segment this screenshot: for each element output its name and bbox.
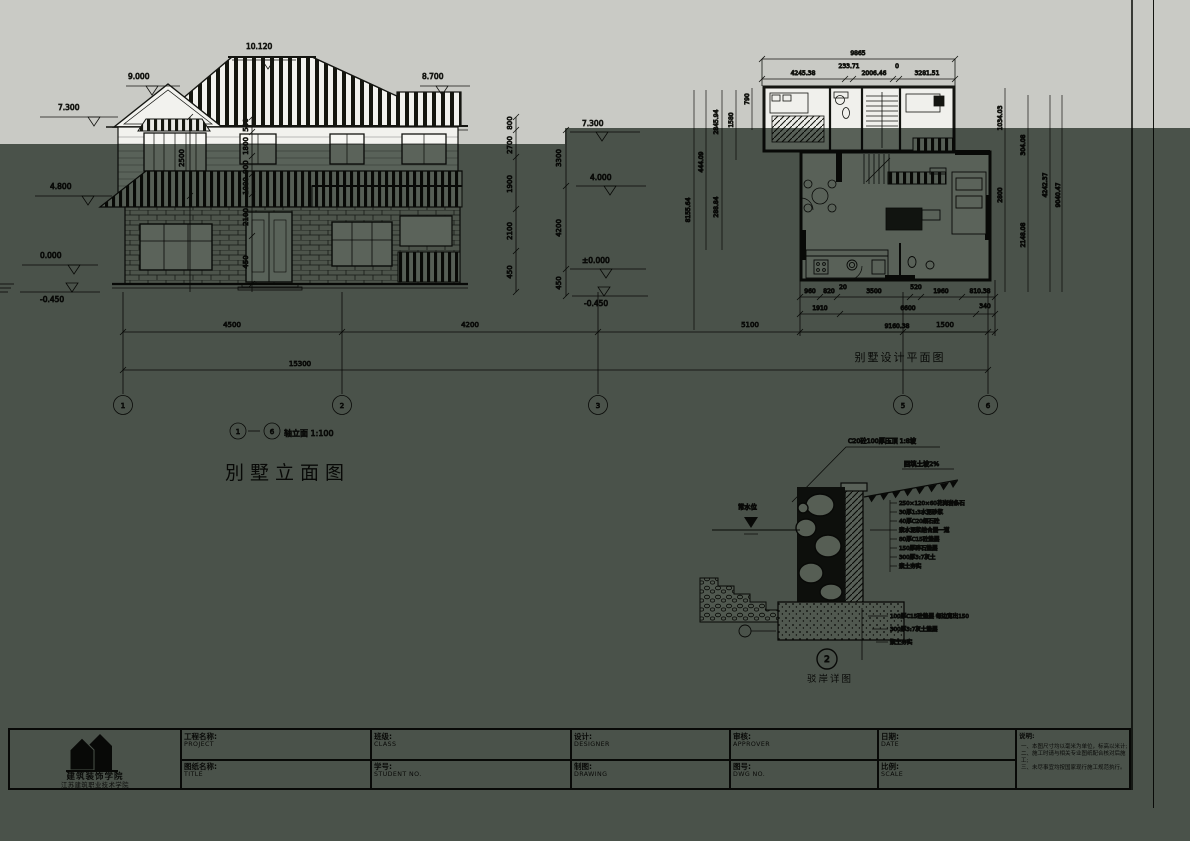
level-label: 0.000 bbox=[40, 251, 62, 260]
dim-label: 9865 bbox=[850, 50, 865, 57]
footing bbox=[778, 602, 904, 640]
layer-label: 300厚3:7灰土 bbox=[899, 553, 936, 561]
layer-label: 素土夯实 bbox=[899, 562, 922, 570]
level-label: 8.700 bbox=[422, 72, 444, 81]
field-dwg-no: 图号: DWG NO. bbox=[733, 762, 765, 779]
axis-start-label: 1 bbox=[236, 428, 240, 436]
elevation-title: 別墅立面图 bbox=[225, 462, 350, 484]
dim-label: 450 bbox=[555, 276, 563, 289]
dim-label: 810.38 bbox=[970, 288, 991, 295]
dim-label: 2800 bbox=[997, 187, 1004, 202]
field-label-cn: 日期: bbox=[881, 732, 899, 741]
field-label-en: DESIGNER bbox=[574, 741, 610, 749]
stepped-bank bbox=[700, 578, 784, 622]
upper-windows bbox=[240, 134, 446, 164]
grid-bubble-label: 3 bbox=[596, 402, 600, 410]
layer-label: 150厚碎石垫层 bbox=[899, 544, 938, 552]
dim-label: 2700 bbox=[506, 136, 514, 154]
dim-label: 790 bbox=[744, 93, 751, 105]
dim-label: 1800 bbox=[242, 137, 250, 155]
level-label: 9.000 bbox=[128, 72, 150, 81]
field-project: 工程名称: PROJECT bbox=[184, 732, 217, 749]
left-window bbox=[140, 224, 212, 270]
dim-label: 4200 bbox=[461, 321, 479, 329]
school-logo-icon bbox=[10, 730, 180, 772]
revetment-detail-drawing: C20砼100厚压顶 1:8坡 回填土坡2% 常水位 bbox=[700, 436, 969, 669]
dim-label: 3500 bbox=[866, 288, 881, 295]
cad-sheet: 10.120 9.000 8.700 7.300 4.800 0.000 -0.… bbox=[0, 0, 1190, 841]
drawing-canvas: 10.120 9.000 8.700 7.300 4.800 0.000 -0.… bbox=[0, 0, 1190, 841]
dim-label: 6600 bbox=[900, 305, 915, 312]
dormer-roof bbox=[397, 92, 461, 126]
axis-scale-label: 轴立面 1:100 bbox=[284, 428, 334, 438]
dim-label: 2845.94 bbox=[713, 109, 720, 134]
layer-label: 80厚C15砼垫层 bbox=[899, 535, 940, 543]
dim-label: 900 bbox=[242, 160, 250, 173]
elevation-drawing bbox=[100, 57, 468, 290]
dim-label: 1960 bbox=[933, 288, 948, 295]
island-table bbox=[886, 208, 922, 230]
dim-label: 800 bbox=[506, 116, 514, 129]
dim-label: 1580 bbox=[728, 112, 735, 127]
level-label: 7.300 bbox=[582, 119, 604, 128]
dim-label: 1034.03 bbox=[997, 105, 1004, 130]
field-label-en: SCALE bbox=[881, 771, 903, 779]
balcony-railing bbox=[312, 186, 462, 207]
dim-label: 500 bbox=[242, 118, 250, 131]
dim-label: 233.71 bbox=[839, 63, 860, 70]
dim-label: 4500 bbox=[223, 321, 241, 329]
sheet-border bbox=[1132, 0, 1154, 808]
dim-label: 2100 bbox=[506, 222, 514, 240]
dim-label: 3300 bbox=[555, 149, 563, 167]
detail-note-top: C20砼100厚压顶 1:8坡 bbox=[848, 436, 917, 445]
dim-label: 2100 bbox=[242, 208, 250, 226]
level-label: ±0.000 bbox=[582, 256, 610, 265]
layer-label: 素水泥浆结合层一道 bbox=[899, 526, 950, 534]
dim-label: 820 bbox=[823, 288, 835, 295]
dim-label: 2500 bbox=[178, 149, 186, 167]
field-label-cn: 制图: bbox=[574, 762, 607, 771]
level-label: 10.120 bbox=[246, 42, 272, 51]
dim-label: 2006.46 bbox=[862, 70, 887, 77]
detail-note-slope: 回填土坡2% bbox=[904, 459, 939, 468]
field-label-cn: 图号: bbox=[733, 762, 765, 771]
dim-total-label: 9160.38 bbox=[885, 323, 910, 330]
level-label: 4.000 bbox=[590, 173, 612, 182]
dim-label: 20 bbox=[839, 284, 847, 291]
level-label: 7.300 bbox=[58, 103, 80, 112]
field-label-en: STUDENT NO. bbox=[374, 771, 422, 779]
footing-note: 100厚C15砼垫层 每边宽出150 bbox=[890, 612, 969, 620]
dim-label: 340 bbox=[979, 303, 991, 310]
dim-label: 9040.47 bbox=[1055, 182, 1062, 207]
retaining-wall bbox=[845, 490, 863, 608]
grid-extension-lines bbox=[123, 292, 988, 394]
field-designer: 设计: DESIGNER bbox=[574, 732, 610, 749]
divider bbox=[180, 759, 1015, 761]
dim-label: 4245.38 bbox=[791, 70, 816, 77]
field-student-no: 学号: STUDENT NO. bbox=[374, 762, 422, 779]
field-label-cn: 班级: bbox=[374, 732, 396, 741]
bay-awning bbox=[138, 119, 210, 131]
note-line: 二、施工时请与相关专业图纸配合核对后施工; bbox=[1021, 751, 1130, 765]
field-label-cn: 审核: bbox=[733, 732, 770, 741]
level-label: 4.800 bbox=[50, 182, 72, 191]
side-railing bbox=[398, 252, 460, 282]
field-approver: 审核: APPROVER bbox=[733, 732, 770, 749]
soil-hatch bbox=[868, 481, 958, 503]
dim-label: 4200 bbox=[555, 219, 563, 237]
field-title: 图纸名称: TITLE bbox=[184, 762, 217, 779]
dim-label: 1910 bbox=[812, 305, 827, 312]
dim-label: 8155.64 bbox=[685, 197, 692, 222]
grid-bubbles bbox=[114, 396, 998, 415]
plan-right-dims bbox=[1005, 88, 1062, 292]
dim-label: 288.84 bbox=[713, 196, 720, 217]
field-label-cn: 设计: bbox=[574, 732, 610, 741]
dim-label: 1000 bbox=[242, 177, 250, 195]
level-label: -0.450 bbox=[584, 299, 608, 308]
dim-label: 4242.37 bbox=[1042, 172, 1049, 197]
field-label-cn: 比例: bbox=[881, 762, 903, 771]
dim-label: 520 bbox=[910, 284, 922, 291]
grid-bubble-label: 1 bbox=[121, 402, 125, 410]
grid-bubble-label: 2 bbox=[340, 402, 344, 410]
field-label-en: DRAWING bbox=[574, 771, 607, 779]
dim-label: 5100 bbox=[741, 321, 759, 329]
layer-label: 250×120×60花岗岩条石 bbox=[899, 499, 965, 507]
dim-label: 2148.08 bbox=[1020, 222, 1027, 247]
detail-caption: 驳岸详图 bbox=[807, 673, 853, 685]
dim-label: 450 bbox=[242, 255, 250, 268]
title-block: 建筑装饰学院 江苏建筑职业技术学院 工程名称: PROJECT 图纸名称: TI… bbox=[8, 728, 1131, 790]
dim-label: 304.08 bbox=[1020, 134, 1027, 155]
side-window bbox=[400, 216, 452, 246]
logo-text-secondary: 江苏建筑职业技术学院 bbox=[10, 782, 180, 790]
note-line: 三、未尽事宜均按国家现行施工规范执行。 bbox=[1021, 765, 1130, 772]
field-label-en: DWG NO. bbox=[733, 771, 765, 779]
dim-label: 0 bbox=[895, 63, 899, 70]
field-label-cn: 工程名称: bbox=[184, 732, 217, 741]
field-label-en: APPROVER bbox=[733, 741, 770, 749]
layer-leaders bbox=[870, 500, 897, 572]
field-label-en: CLASS bbox=[374, 741, 396, 749]
dim-label: 444.09 bbox=[698, 151, 705, 172]
notes-title: 说明: bbox=[1019, 732, 1035, 740]
dim-label: 1900 bbox=[506, 175, 514, 193]
dim-total-label: 15300 bbox=[289, 360, 311, 368]
axis-end-label: 6 bbox=[270, 428, 275, 436]
detail-bubble-number: 2 bbox=[824, 655, 830, 665]
logo-cell: 建筑装饰学院 江苏建筑职业技术学院 bbox=[10, 730, 180, 788]
note-line: 一、本图尺寸均以毫米为单位，标高以米计; bbox=[1021, 744, 1130, 751]
dim-label: 1500 bbox=[936, 321, 954, 329]
field-label-cn: 图纸名称: bbox=[184, 762, 217, 771]
footing-note: 素土夯实 bbox=[890, 638, 913, 646]
field-label-en: TITLE bbox=[184, 771, 217, 779]
layer-label: 30厚1:3水泥砂浆 bbox=[899, 508, 943, 516]
field-drawing: 制图: DRAWING bbox=[574, 762, 607, 779]
water-level-label: 常水位 bbox=[738, 502, 758, 511]
grid-bubble-label: 5 bbox=[901, 402, 905, 410]
level-label: -0.450 bbox=[40, 295, 64, 304]
upper-balcony-railing bbox=[913, 138, 954, 151]
field-label-en: PROJECT bbox=[184, 741, 217, 749]
notes-cell: 说明: 一、本图尺寸均以毫米为单位，标高以米计; 二、施工时请与相关专业图纸配合… bbox=[1015, 730, 1133, 788]
floor-plan-drawing: 9865 4245.38 233.71 2006.46 0 3281.51 bbox=[685, 50, 1062, 336]
field-label-en: DATE bbox=[881, 741, 899, 749]
field-label-cn: 学号: bbox=[374, 762, 422, 771]
dim-label: 3281.51 bbox=[915, 70, 940, 77]
plan-left-dims bbox=[694, 88, 752, 330]
grid-bubble-label: 6 bbox=[986, 402, 991, 410]
field-date: 日期: DATE bbox=[881, 732, 899, 749]
dim-label: 450 bbox=[506, 265, 514, 278]
field-scale: 比例: SCALE bbox=[881, 762, 903, 779]
field-class: 班级: CLASS bbox=[374, 732, 396, 749]
plan-caption: 别墅设计平面图 bbox=[855, 351, 946, 364]
dim-label: 960 bbox=[804, 288, 816, 295]
right-window bbox=[332, 222, 392, 266]
layer-label: 40厚C20细石砼 bbox=[899, 517, 940, 525]
footing-note: 300厚3:7灰土垫层 bbox=[890, 625, 938, 633]
notes-body: 一、本图尺寸均以毫米为单位，标高以米计; 二、施工时请与相关专业图纸配合核对后施… bbox=[1021, 744, 1130, 772]
